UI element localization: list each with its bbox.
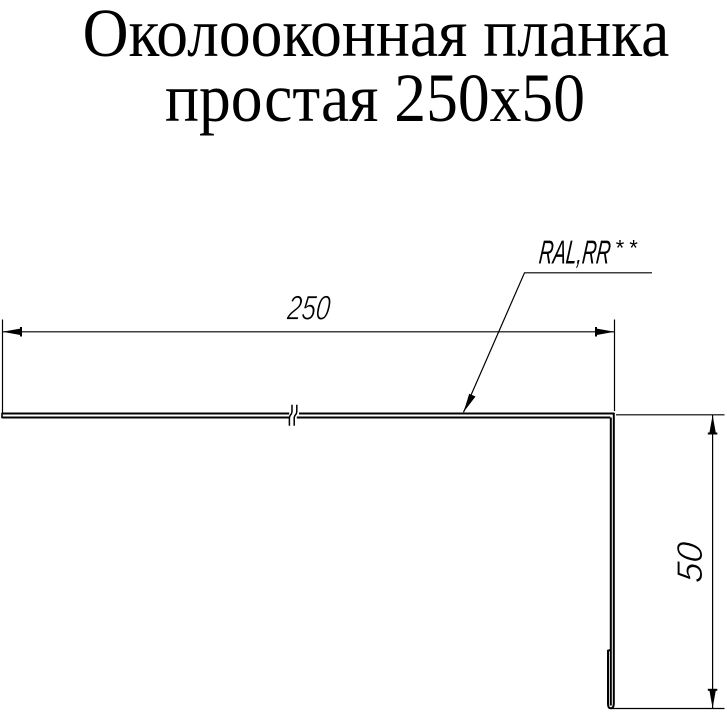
svg-text:**: **: [615, 236, 642, 261]
svg-text:50: 50: [669, 540, 710, 584]
svg-text:250: 250: [285, 290, 332, 327]
svg-text:RAL,RR: RAL,RR: [537, 233, 612, 271]
